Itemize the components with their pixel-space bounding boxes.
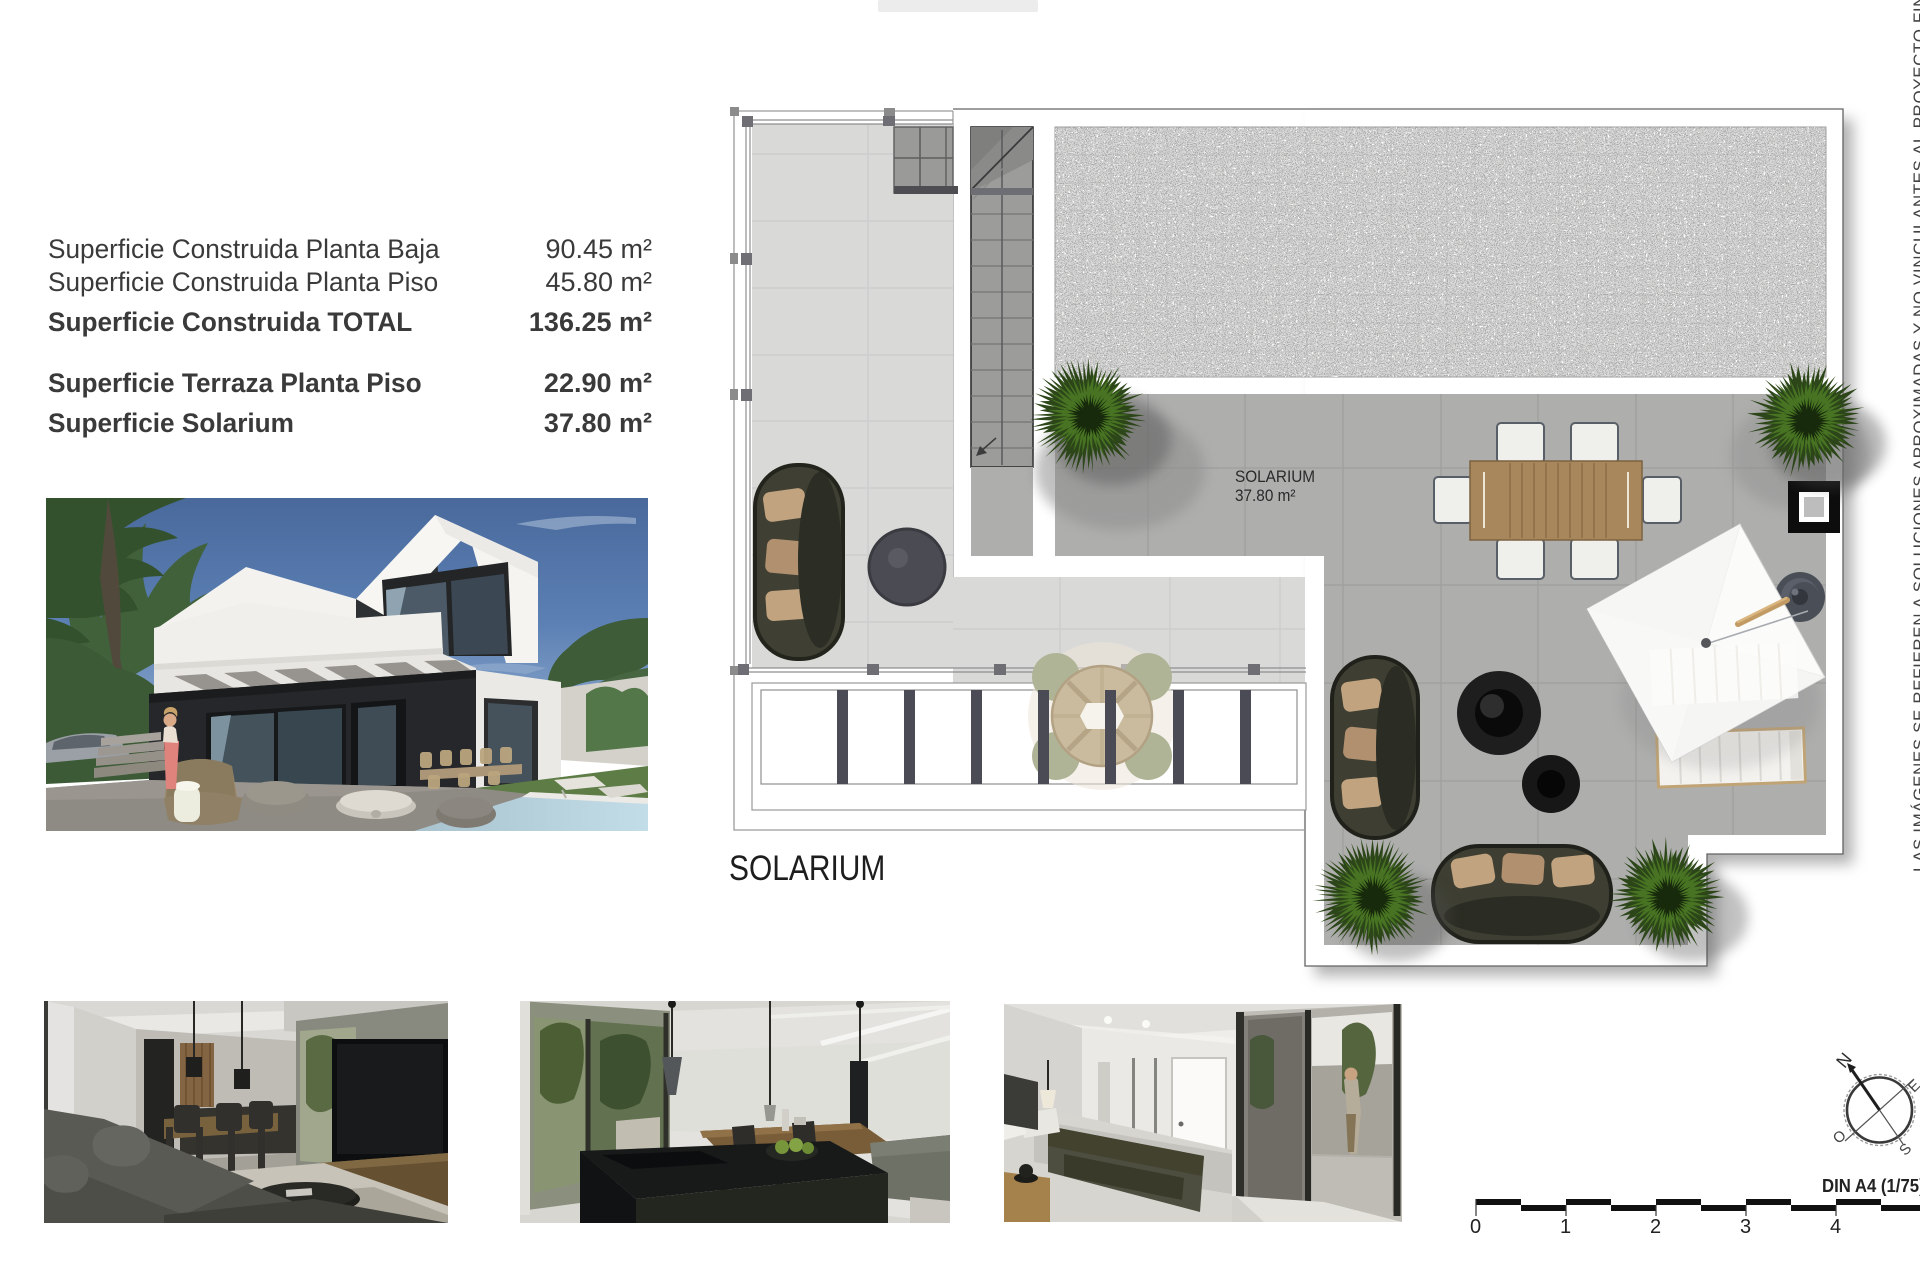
- svg-text:1: 1: [1560, 1216, 1571, 1238]
- svg-text:3: 3: [1740, 1216, 1751, 1238]
- svg-text:O: O: [1830, 1127, 1850, 1148]
- svg-text:SOLARIUM: SOLARIUM: [1235, 469, 1315, 487]
- svg-text:S: S: [1896, 1140, 1915, 1159]
- svg-text:37.80 m²: 37.80 m²: [1235, 488, 1296, 506]
- svg-text:0: 0: [1470, 1216, 1481, 1238]
- svg-text:4: 4: [1830, 1216, 1841, 1238]
- svg-text:2: 2: [1650, 1216, 1661, 1238]
